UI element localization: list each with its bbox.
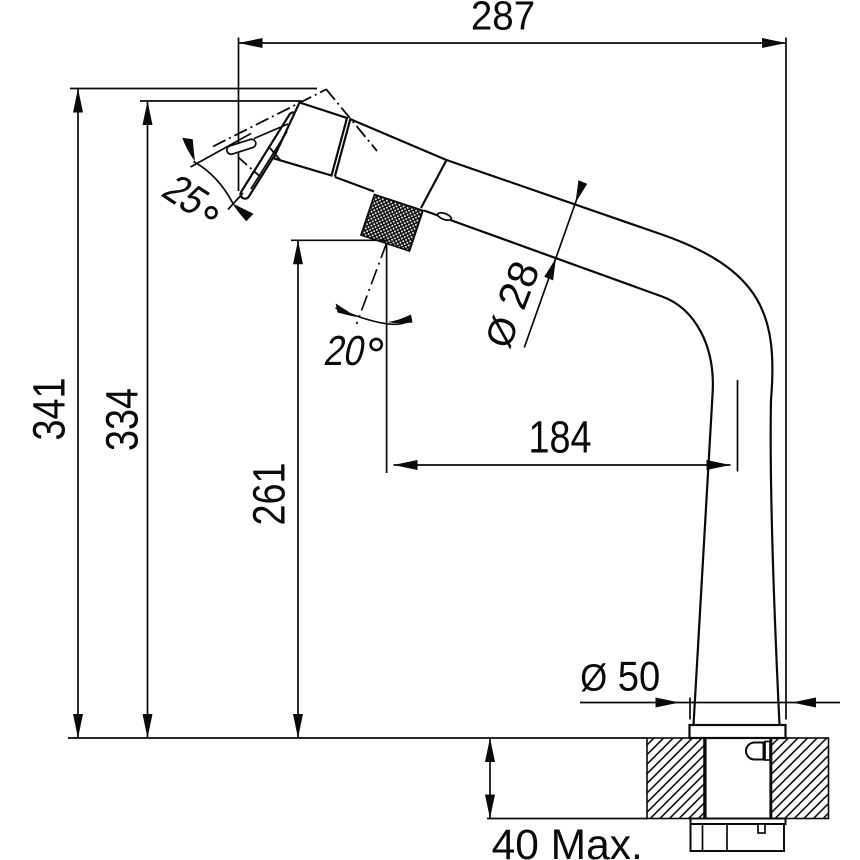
svg-text:40 Max.: 40 Max.	[492, 822, 643, 860]
svg-text:341: 341	[23, 377, 74, 440]
svg-text:287: 287	[471, 0, 535, 39]
svg-text:Ø 50: Ø 50	[580, 653, 660, 700]
svg-text:Ø 28: Ø 28	[473, 255, 548, 354]
svg-text:20: 20	[321, 327, 370, 374]
svg-text:334: 334	[96, 388, 147, 451]
svg-text:184: 184	[528, 411, 591, 462]
svg-text:261: 261	[243, 462, 294, 525]
